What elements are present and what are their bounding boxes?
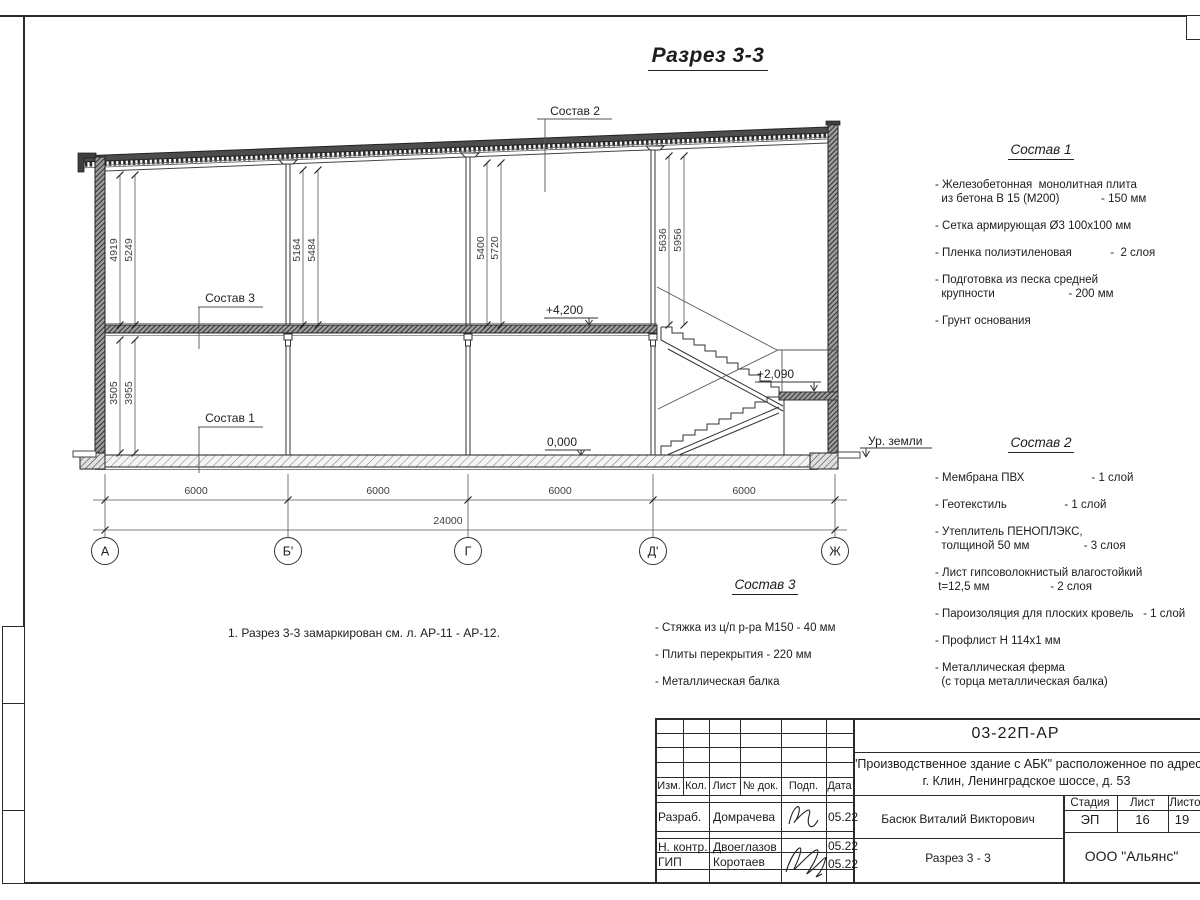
spec-item: - Грунт основания [935, 314, 1197, 328]
tb-line [655, 718, 657, 883]
spec-item: - Плиты перекрытия - 220 мм [655, 648, 895, 662]
spec3-title: Состав 3 [655, 578, 875, 595]
dim-text: 5636 [657, 228, 669, 252]
tb-line [655, 718, 1200, 720]
tb-line [655, 733, 853, 734]
spec-item: - Лист гипсоволокнистый влагостойкий t=1… [935, 566, 1197, 594]
col-header-podp: Подп. [781, 780, 826, 792]
axis-label: Д' [648, 545, 659, 559]
spec-item: - Металлическая ферма (с торца металличе… [935, 661, 1197, 689]
stair-landing [779, 392, 838, 400]
elevation-text: +4,200 [546, 303, 583, 317]
spec-item: - Стяжка из ц/п р-ра М150 - 40 мм [655, 621, 895, 635]
tb-line [826, 718, 827, 883]
tb-line [853, 752, 1200, 753]
spec-item: - Утеплитель ПЕНОПЛЭКС, толщиной 50 мм -… [935, 525, 1197, 553]
floor-slab [105, 324, 657, 336]
spec-item: - Металлическая балка [655, 675, 895, 689]
title-block: 03-22П-АР "Производственное здание с АБК… [655, 718, 1200, 883]
spec-block-3: Состав 3 - Стяжка из ц/п р-ра М150 - 40 … [655, 578, 895, 702]
spec-item: - Сетка армирующая Ø3 100х100 мм [935, 219, 1197, 233]
spec3-items: - Стяжка из ц/п р-ра М150 - 40 мм- Плиты… [655, 621, 895, 689]
project-name-line1: "Производственное здание с АБК" располож… [853, 757, 1200, 771]
dim-text: 6000 [732, 485, 756, 497]
tb-line [655, 762, 853, 763]
vertical-dimensions [117, 153, 688, 457]
dim-text: 5956 [672, 228, 684, 252]
ground-ledge-right [838, 452, 860, 458]
row-name: Двоеглазов [713, 840, 777, 854]
tb-line [655, 747, 853, 748]
spec2-title: Состав 2 [935, 436, 1147, 453]
dim-text: 5484 [306, 238, 318, 262]
horizontal-dimensions [93, 474, 847, 537]
upper-flight-steps [661, 327, 779, 393]
spec-item: - Геотекстиль - 1 слой [935, 498, 1197, 512]
horizontal-dimension-texts: 6000 6000 6000 6000 24000 [184, 485, 756, 527]
dim-text: 24000 [433, 515, 462, 527]
tb-line [655, 777, 853, 778]
dim-text: 6000 [184, 485, 208, 497]
ground-ledge-left [73, 451, 96, 457]
drawing-name: Разрез 3 - 3 [853, 851, 1063, 865]
stage-label: Стадия [1063, 797, 1117, 809]
row-role: ГИП [658, 855, 682, 869]
dim-text: 4919 [108, 238, 120, 262]
dim-text: 3505 [108, 381, 120, 405]
dim-text: 6000 [366, 485, 390, 497]
lower-flight-steps [661, 397, 779, 451]
row-role: Разраб. [658, 810, 701, 824]
dim-text: 3955 [123, 381, 135, 405]
project-name-line2: г. Клин, Ленинградское шоссе, д. 53 [853, 774, 1200, 788]
row-role: Н. контр. [658, 840, 708, 854]
spec1-items: - Железобетонная монолитная плита из бет… [935, 178, 1197, 328]
spec-item: - Пленка полиэтиленовая - 2 слоя [935, 246, 1197, 260]
dim-text: 6000 [548, 485, 572, 497]
spec-item: - Железобетонная монолитная плита из бет… [935, 178, 1197, 206]
doc-number: 03-22П-АР [853, 725, 1178, 743]
col-header-izm: Изм. [655, 780, 683, 792]
col-header-kol: Кол. [683, 780, 709, 792]
col-header-list: Лист [709, 780, 740, 792]
axis-label: Б' [283, 545, 294, 559]
tb-line [781, 718, 782, 883]
dim-text: 5164 [291, 238, 303, 262]
roof [78, 127, 828, 172]
spec-item: - Мембрана ПВХ - 1 слой [935, 471, 1197, 485]
dimension-ticks [117, 153, 688, 457]
leader-label: Состав 3 [205, 291, 255, 305]
spec-block-1: Состав 1 - Железобетонная монолитная пли… [935, 143, 1197, 341]
row-name: Коротаев [713, 855, 765, 869]
spec-item: - Пароизоляция для плоских кровель - 1 с… [935, 607, 1197, 621]
spec1-title: Состав 1 [935, 143, 1147, 160]
leader-label: Состав 1 [205, 411, 255, 425]
drawing-sheet: Разрез 3-3 [0, 0, 1200, 900]
leader-label: Состав 2 [550, 104, 600, 118]
left-wall [95, 157, 105, 455]
spec-item: - Профлист Н 114х1 мм [935, 634, 1197, 648]
footing-right [810, 453, 838, 469]
tb-line [655, 802, 853, 803]
spec2-items: - Мембрана ПВХ - 1 слой- Геотекстиль - 1… [935, 471, 1197, 689]
col-header-data: Дата [826, 780, 853, 792]
sheets-value: 19 [1168, 812, 1196, 827]
tb-line [1063, 810, 1200, 811]
tb-line [709, 718, 710, 883]
stage-value: ЭП [1063, 812, 1117, 827]
col-header-ndok: № док. [740, 780, 781, 792]
drawing-note: 1. Разрез 3-3 замаркирован см. л. АР-11 … [228, 626, 500, 640]
sheet-label: Лист [1117, 797, 1168, 809]
axis-label: А [101, 545, 110, 559]
spec-block-2: Состав 2 - Мембрана ПВХ - 1 слой- Геотек… [935, 436, 1197, 702]
tb-line [655, 869, 853, 870]
axis-bubbles: А Б' Г Д' Ж [92, 538, 849, 565]
row-name: Домрачева [713, 810, 775, 824]
company-name: ООО "Альянс" [1063, 848, 1200, 864]
axis-label: Г [465, 545, 472, 559]
elevation-text: 0,000 [547, 435, 577, 449]
dim-text: 5249 [123, 238, 135, 262]
sheet-value: 16 [1117, 812, 1168, 827]
right-wall [826, 121, 840, 455]
tb-line [1063, 832, 1200, 833]
author-full-name: Басюк Виталий Викторович [853, 812, 1063, 826]
dim-text: 5400 [475, 236, 487, 260]
axis-label: Ж [829, 545, 841, 559]
vertical-dimension-texts: 4919 5249 5164 5484 5400 5720 5636 5956 … [108, 228, 684, 405]
tb-line [655, 831, 853, 832]
tb-line [655, 882, 1200, 884]
columns [279, 146, 664, 455]
elevation-text: +2,090 [757, 367, 794, 381]
sheets-label: Листов [1168, 797, 1200, 809]
dim-text: 5720 [489, 236, 501, 260]
spec-item: - Подготовка из песка средней крупности … [935, 273, 1197, 301]
ground-level-label: Ур. земли [868, 434, 922, 448]
